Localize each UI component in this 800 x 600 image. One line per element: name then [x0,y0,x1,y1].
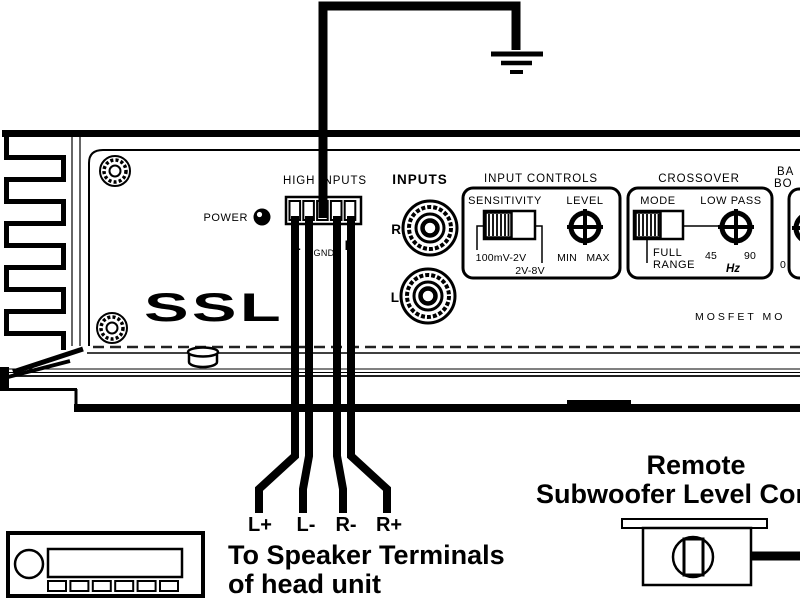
wire-label-r-plus: R+ [376,514,402,536]
mode-range-label: RANGE [653,259,695,271]
sensitivity-range-high: 2V-8V [515,265,545,277]
sensitivity-label: SENSITIVITY [468,195,542,207]
power-led-icon [254,209,271,226]
remote-flange [622,519,767,528]
screw-top-left-icon [100,156,130,186]
inputs-label: INPUTS [392,172,448,187]
bass-boost-title-line2: BO [774,178,792,190]
crossover-section: CROSSOVER MODE LOW PASS FULL RANGE 45 90… [628,173,772,278]
wire-label-r-minus: R- [335,514,356,536]
power-led-highlight [257,212,262,217]
wire-label-l-plus: L+ [248,514,272,536]
pin-label-gnd: GND [314,248,335,258]
rca-jack-r-icon [403,201,457,255]
head-unit-display [48,549,182,577]
mode-full-label: FULL [653,247,682,259]
sensitivity-range-low: 100mV-2V [476,252,527,264]
remote-caption-line1: Remote [646,450,745,480]
diagram-canvas: POWER HIGH INPUTS L GND R INPUTS R L [0,0,800,600]
rca-l-label: L [391,290,400,305]
rca-jack-l-icon [401,269,455,323]
amp-top-edge [2,130,800,137]
low-pass-label: LOW PASS [700,195,761,207]
bass-boost-title-line1: BA [777,166,794,178]
bass-boost-zero-label: 0 [780,259,786,271]
rca-r-label: R [391,222,402,237]
mosfet-label: MOSFET MO [695,311,785,323]
wire-label-l-minus: L- [297,514,316,536]
speaker-caption-line2: of head unit [228,569,381,599]
crossover-title: CROSSOVER [658,173,740,185]
bass-boost-section: BA BO 0 [774,166,800,278]
remote-level-control [622,519,800,585]
screw-bottom-left-icon [97,313,127,343]
head-unit-knob-icon [15,550,43,578]
power-indicator: POWER [203,209,270,226]
chassis-base [0,347,800,412]
head-unit [8,533,203,596]
mounting-foot-icon [188,348,218,368]
level-label: LEVEL [566,195,603,207]
level-max-label: MAX [586,252,609,264]
input-controls-section: INPUT CONTROLS SENSITIVITY LEVEL 100mV-2… [463,173,620,278]
freq-low-label: 45 [705,250,717,262]
power-label: POWER [203,212,248,224]
freq-high-label: 90 [744,250,756,262]
mode-label: MODE [640,195,675,207]
remote-knob-slot [684,539,703,575]
amp-wiring-diagram: POWER HIGH INPUTS L GND R INPUTS R L [0,0,800,600]
ground-symbol-icon [491,54,543,72]
ssl-logo: SSL [144,286,284,330]
speaker-caption-line1: To Speaker Terminals [228,540,505,570]
freq-unit-label: Hz [726,263,740,275]
heatsink-fins-icon [4,133,66,350]
input-controls-title: INPUT CONTROLS [484,173,598,185]
remote-caption-line2: Subwoofer Level Con [536,479,800,509]
level-min-label: MIN [557,252,577,264]
